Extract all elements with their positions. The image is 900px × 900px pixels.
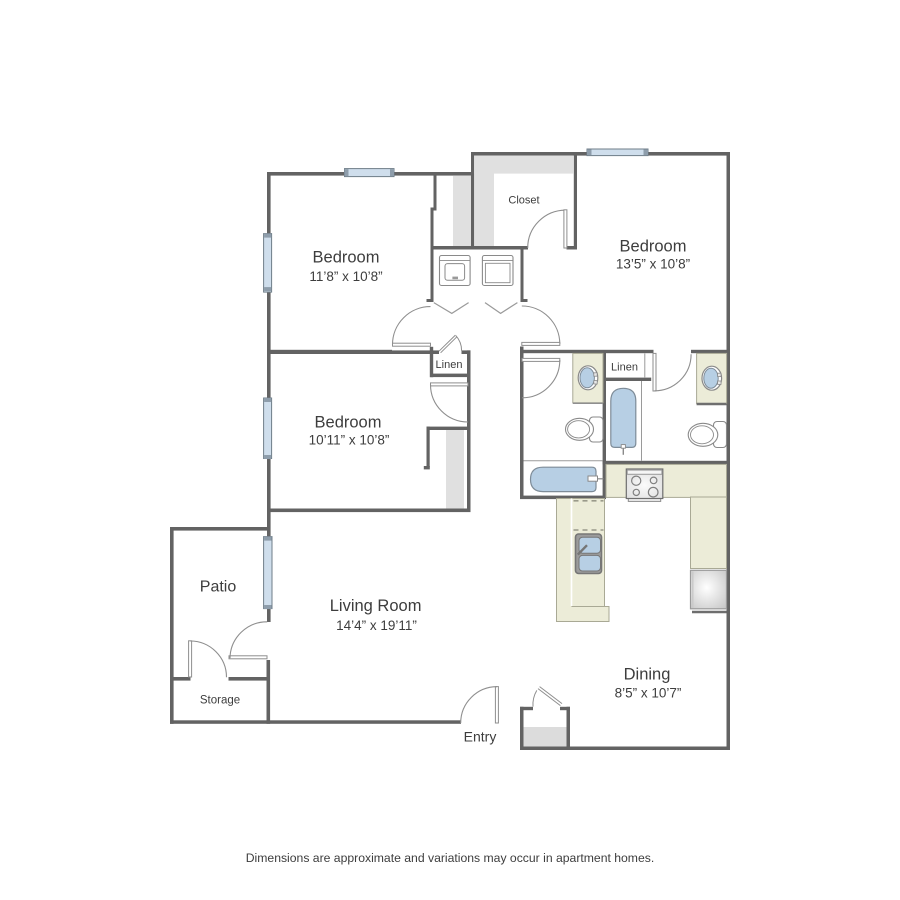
- svg-text:Bedroom: Bedroom: [315, 414, 382, 432]
- svg-text:11’8” x 10’8”: 11’8” x 10’8”: [309, 269, 382, 284]
- svg-text:10’11” x 10’8”: 10’11” x 10’8”: [309, 433, 390, 448]
- svg-text:Dimensions are approximate and: Dimensions are approximate and variation…: [246, 851, 654, 865]
- svg-text:Closet: Closet: [508, 195, 539, 207]
- svg-text:14’4” x 19’11”: 14’4” x 19’11”: [336, 618, 417, 633]
- svg-text:Living Room: Living Room: [330, 597, 422, 615]
- svg-text:Bedroom: Bedroom: [313, 249, 380, 267]
- svg-text:Dining: Dining: [624, 666, 671, 684]
- svg-text:Bedroom: Bedroom: [620, 238, 687, 256]
- svg-text:Linen: Linen: [611, 362, 638, 374]
- svg-text:Linen: Linen: [436, 359, 463, 371]
- svg-text:8’5” x 10’7”: 8’5” x 10’7”: [615, 686, 682, 701]
- svg-text:Entry: Entry: [464, 729, 497, 745]
- svg-text:Patio: Patio: [200, 579, 237, 596]
- svg-text:13’5” x 10’8”: 13’5” x 10’8”: [616, 257, 690, 272]
- svg-text:Storage: Storage: [200, 695, 240, 707]
